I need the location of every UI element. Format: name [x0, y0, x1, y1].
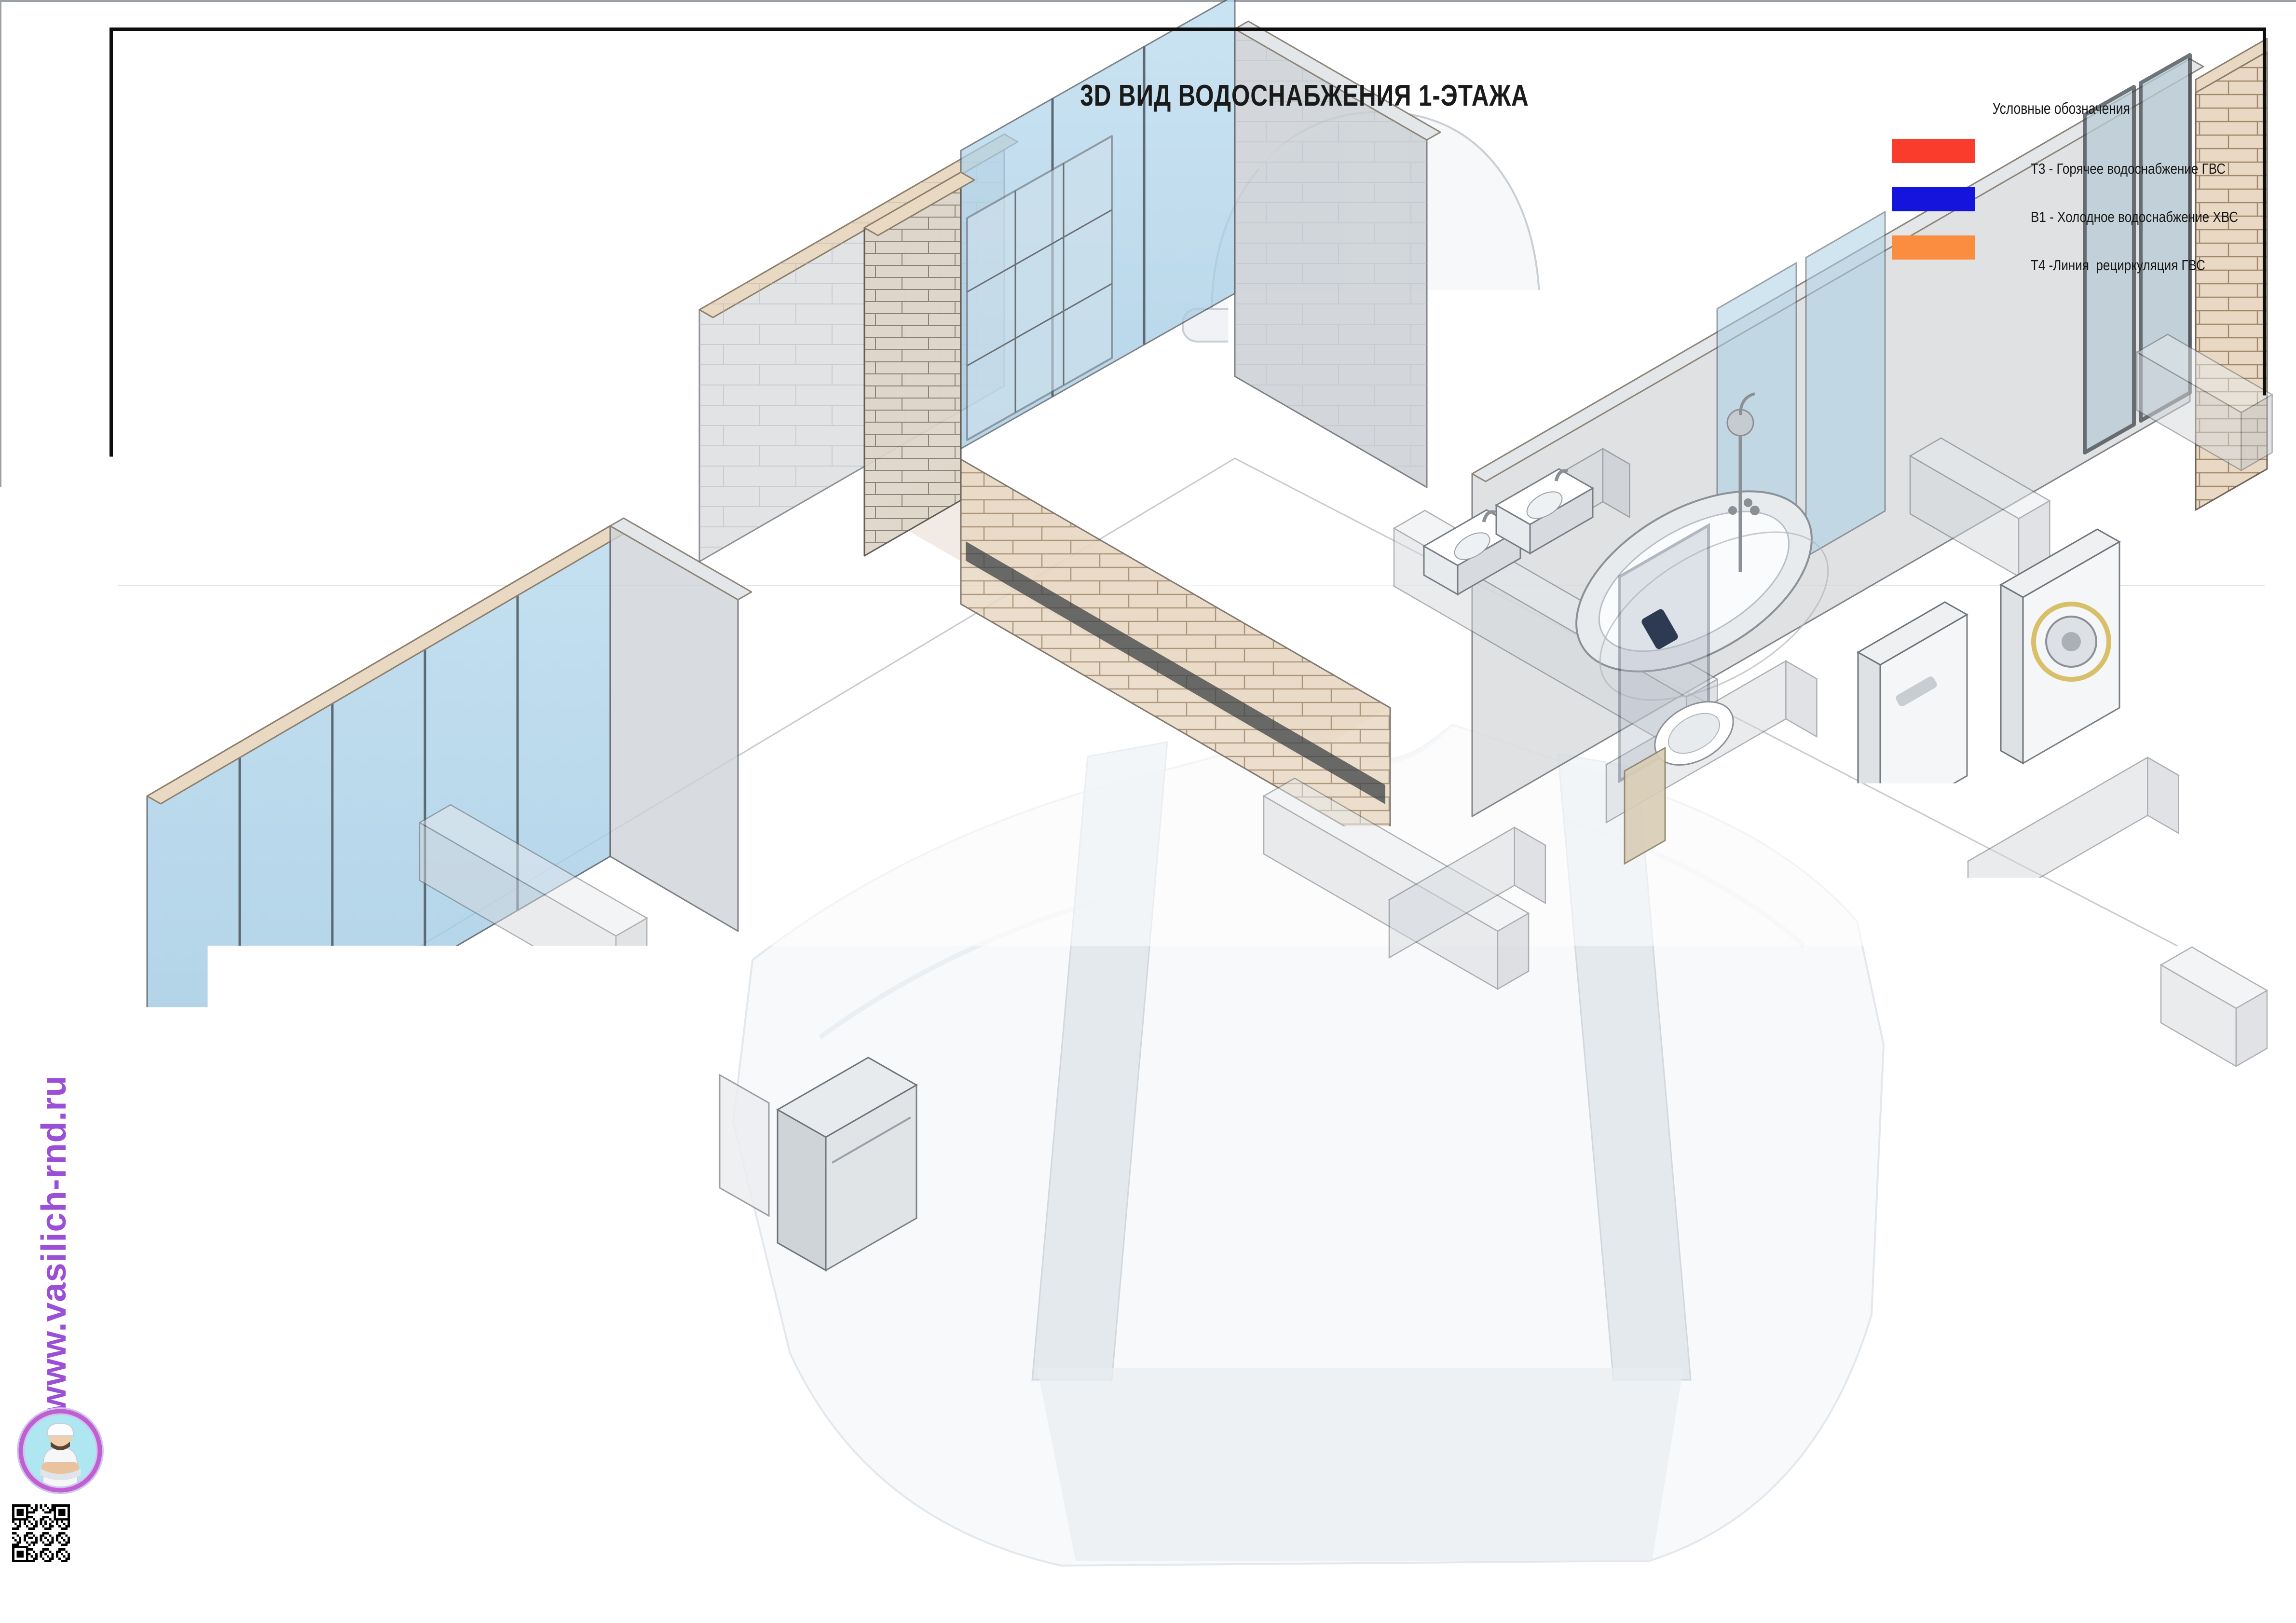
qr-module [68, 1507, 70, 1509]
qr-module [52, 1521, 54, 1523]
qr-module [42, 1516, 44, 1518]
qr-module [14, 1544, 17, 1546]
qr-module [68, 1557, 70, 1560]
qr-module [44, 1511, 47, 1513]
qr-module [44, 1548, 47, 1551]
qr-module [56, 1553, 58, 1555]
qr-module [30, 1555, 33, 1558]
qr-module [33, 1525, 35, 1527]
qr-module [12, 1527, 14, 1530]
legend-item-hot: Т3 - Горячее водоснабжение ГВС [2006, 143, 2263, 195]
qr-module [68, 1525, 70, 1527]
qr-module [56, 1518, 58, 1521]
qr-module [12, 1507, 14, 1509]
qr-module [68, 1553, 70, 1555]
qr-module [12, 1555, 14, 1558]
qr-module [61, 1509, 63, 1512]
qr-module [21, 1504, 24, 1507]
qr-module [12, 1509, 14, 1512]
qr-module [54, 1513, 56, 1516]
qr-module [19, 1546, 21, 1548]
qr-module [24, 1534, 26, 1537]
qr-module [47, 1548, 49, 1551]
legend-item-recirc: Т4 -Линия рециркуляция ГВС [2006, 239, 2239, 291]
qr-module [12, 1548, 14, 1551]
qr-module [63, 1518, 66, 1521]
qr-module [61, 1511, 63, 1513]
qr-module [61, 1532, 63, 1535]
qr-module [49, 1509, 52, 1512]
qr-module [28, 1532, 31, 1535]
qr-module [26, 1509, 28, 1512]
qr-module [40, 1518, 42, 1521]
qr-module [44, 1537, 47, 1539]
qr-module [54, 1511, 56, 1513]
legend-swatch-hot [1892, 139, 1975, 163]
qr-module [65, 1541, 68, 1544]
qr-module [49, 1541, 52, 1544]
qr-module [68, 1504, 70, 1507]
qr-module [28, 1504, 31, 1507]
qr-module [56, 1523, 58, 1525]
qr-module [47, 1511, 49, 1513]
qr-module [44, 1527, 47, 1530]
qr-module [17, 1525, 19, 1527]
qr-module [63, 1539, 66, 1541]
qr-module [68, 1537, 70, 1539]
qr-module [52, 1504, 54, 1507]
qr-module [63, 1527, 66, 1530]
qr-module [63, 1523, 66, 1525]
qr-module [12, 1518, 14, 1521]
qr-module [63, 1560, 66, 1562]
qr-module [35, 1525, 38, 1527]
qr-module [58, 1513, 61, 1516]
legend-swatch-recirc [1892, 235, 1975, 260]
qr-module [40, 1521, 42, 1523]
qr-module [44, 1523, 47, 1525]
qr-module [52, 1537, 54, 1539]
qr-module [54, 1518, 56, 1521]
qr-module [42, 1541, 44, 1544]
qr-module [26, 1511, 28, 1513]
qr-module [26, 1553, 28, 1555]
qr-module [17, 1546, 19, 1548]
tb-label-izm: Изм. [1258, 1569, 1297, 1593]
qr-module [14, 1532, 17, 1535]
qr-module [47, 1527, 49, 1530]
qr-module [30, 1548, 33, 1551]
qr-module [21, 1546, 24, 1548]
qr-module [17, 1551, 19, 1553]
qr-module [17, 1534, 19, 1537]
qr-module [33, 1509, 35, 1512]
qr-module [47, 1560, 49, 1562]
qr-module [19, 1525, 21, 1527]
qr-module [58, 1511, 61, 1513]
qr-module [21, 1518, 24, 1521]
qr-module [26, 1504, 28, 1507]
qr-module [61, 1518, 63, 1521]
qr-module [56, 1551, 58, 1553]
qr-module [28, 1516, 31, 1518]
qr-module [63, 1555, 66, 1558]
qr-module [56, 1534, 58, 1537]
qr-module [17, 1544, 19, 1546]
qr-module [54, 1507, 56, 1509]
qr-module [35, 1557, 38, 1560]
qr-module [12, 1546, 14, 1548]
qr-module [17, 1511, 19, 1513]
qr-module [12, 1560, 14, 1562]
qr-module [49, 1523, 52, 1525]
qr-module [61, 1521, 63, 1523]
qr-module [68, 1511, 70, 1513]
qr-module [63, 1513, 66, 1516]
qr-module [12, 1544, 14, 1546]
qr-module [19, 1521, 21, 1523]
qr-module [56, 1539, 58, 1541]
qr-module [19, 1523, 21, 1525]
qr-module [35, 1521, 38, 1523]
qr-module [52, 1555, 54, 1558]
qr-module [19, 1509, 21, 1512]
qr-module [26, 1516, 28, 1518]
qr-module [56, 1537, 58, 1539]
qr-module [33, 1557, 35, 1560]
qr-module [21, 1551, 24, 1553]
qr-module [14, 1527, 17, 1530]
qr-module [35, 1507, 38, 1509]
qr-module [33, 1518, 35, 1521]
qr-module [49, 1511, 52, 1513]
qr-module [17, 1509, 19, 1512]
qr-module [58, 1518, 61, 1521]
qr-module [19, 1511, 21, 1513]
qr-module [40, 1551, 42, 1553]
tb-sheet-number: 4.3 [2214, 1554, 2268, 1593]
qr-module [65, 1544, 68, 1546]
qr-module [21, 1560, 24, 1562]
qr-module [26, 1541, 28, 1544]
qr-module [44, 1516, 47, 1518]
tb-label-list: Лист [1296, 1569, 1352, 1593]
qr-module [47, 1532, 49, 1535]
qr-module [33, 1534, 35, 1537]
qr-module [63, 1544, 66, 1546]
qr-module [42, 1548, 44, 1551]
qr-module [52, 1539, 54, 1541]
qr-module [26, 1507, 28, 1509]
qr-module [40, 1537, 42, 1539]
legend-header: Условные обозначения [1949, 81, 2147, 136]
qr-module [21, 1553, 24, 1555]
qr-module [65, 1504, 68, 1507]
qr-module [19, 1537, 21, 1539]
qr-module [17, 1553, 19, 1555]
qr-module [42, 1518, 44, 1521]
qr-module [65, 1551, 68, 1553]
qr-module [54, 1516, 56, 1518]
qr-module [35, 1509, 38, 1512]
qr-module [19, 1553, 21, 1555]
qr-module [19, 1541, 21, 1544]
qr-module [47, 1555, 49, 1558]
qr-module [30, 1507, 33, 1509]
qr-module [35, 1537, 38, 1539]
qr-module [40, 1534, 42, 1537]
qr-module [52, 1553, 54, 1555]
qr-module [68, 1516, 70, 1518]
qr-module [47, 1507, 49, 1509]
page-title-text: 3D ВИД ВОДОСНАБЖЕНИЯ 1-ЭТАЖА [1080, 79, 1529, 113]
qr-module [26, 1557, 28, 1560]
qr-module [30, 1511, 33, 1513]
qr-module [12, 1521, 14, 1523]
qr-module [42, 1534, 44, 1537]
qr-module [30, 1527, 33, 1530]
qr-module [24, 1518, 26, 1521]
qr-module [65, 1557, 68, 1560]
qr-module [40, 1523, 42, 1525]
qr-module [42, 1509, 44, 1512]
qr-module [17, 1513, 19, 1516]
qr-module [28, 1560, 31, 1562]
qr-module [19, 1513, 21, 1516]
qr-module [42, 1525, 44, 1527]
qr-module [33, 1527, 35, 1530]
qr-module [52, 1557, 54, 1560]
qr-module [58, 1557, 61, 1560]
qr-module [24, 1504, 26, 1507]
qr-module [33, 1511, 35, 1513]
page-title: 3D ВИД ВОДОСНАБЖЕНИЯ 1-ЭТАЖА [989, 44, 1394, 147]
qr-module [21, 1511, 24, 1513]
qr-module [28, 1537, 31, 1539]
qr-module [58, 1534, 61, 1537]
qr-module [68, 1518, 70, 1521]
qr-module [17, 1541, 19, 1544]
qr-module [26, 1546, 28, 1548]
qr-module [61, 1513, 63, 1516]
qr-module [17, 1527, 19, 1530]
qr-module [68, 1523, 70, 1525]
qr-module [68, 1521, 70, 1523]
qr-module [56, 1555, 58, 1558]
qr-module [61, 1544, 63, 1546]
qr-module [47, 1539, 49, 1541]
qr-module [49, 1544, 52, 1546]
qr-module [42, 1557, 44, 1560]
qr-module [28, 1544, 31, 1546]
qr-module [14, 1518, 17, 1521]
qr-module [40, 1555, 42, 1558]
qr-module [28, 1521, 31, 1523]
qr-module [49, 1534, 52, 1537]
qr-module [49, 1525, 52, 1527]
qr-module [21, 1513, 24, 1516]
qr-module [30, 1523, 33, 1525]
qr-module [12, 1504, 14, 1507]
qr-module [12, 1513, 14, 1516]
qr-module [47, 1544, 49, 1546]
qr-module [65, 1518, 68, 1521]
qr-module [52, 1509, 54, 1512]
qr-module [28, 1548, 31, 1551]
qr-module [12, 1551, 14, 1553]
qr-module [49, 1551, 52, 1553]
qr-module [30, 1541, 33, 1544]
qr-module [12, 1537, 14, 1539]
qr-module [49, 1518, 52, 1521]
qr-module [44, 1504, 47, 1507]
qr-module [58, 1541, 61, 1544]
qr-module [19, 1551, 21, 1553]
qr-module [68, 1513, 70, 1516]
qr-module [19, 1560, 21, 1562]
qr-module [42, 1551, 44, 1553]
qr-module [28, 1527, 31, 1530]
legend-item-cold: В1 - Холодное водоснабжение ХВС [2006, 191, 2278, 243]
tb-label-doc: № док. [1352, 1569, 1476, 1593]
qr-module [65, 1525, 68, 1527]
qr-module [26, 1513, 28, 1516]
qr-module [35, 1539, 38, 1541]
qr-module [52, 1541, 54, 1544]
qr-module [30, 1532, 33, 1535]
qr-module [54, 1509, 56, 1512]
qr-module [54, 1504, 56, 1507]
qr-module [61, 1560, 63, 1562]
qr-module [58, 1509, 61, 1512]
qr-module [17, 1504, 19, 1507]
qr-module [14, 1523, 17, 1525]
qr-module [24, 1523, 26, 1525]
tb-sheet-word: Лист [2214, 1516, 2268, 1550]
qr-module [26, 1525, 28, 1527]
qr-module [19, 1539, 21, 1541]
qr-module [28, 1553, 31, 1555]
qr-module [65, 1534, 68, 1537]
qr-module [58, 1551, 61, 1553]
qr-module [35, 1553, 38, 1555]
qr-module [52, 1525, 54, 1527]
qr-module [58, 1525, 61, 1527]
qr-module [44, 1532, 47, 1535]
qr-module [56, 1504, 58, 1507]
qr-module [63, 1548, 66, 1551]
sheet-frame [109, 28, 2266, 1593]
qr-module [35, 1504, 38, 1507]
qr-module [61, 1548, 63, 1551]
qr-code [12, 1504, 70, 1562]
qr-module [14, 1539, 17, 1541]
qr-module [12, 1516, 14, 1518]
qr-module [63, 1509, 66, 1512]
qr-module [35, 1541, 38, 1544]
legend-swatch-cold [1892, 187, 1975, 211]
qr-module [14, 1546, 17, 1548]
qr-module [19, 1518, 21, 1521]
drawing-sheet: 3D ВИД ВОДОСНАБЖЕНИЯ 1-ЭТАЖА Условные об… [0, 0, 2296, 1623]
qr-module [61, 1553, 63, 1555]
qr-module [19, 1555, 21, 1558]
qr-module [56, 1521, 58, 1523]
qr-module [42, 1532, 44, 1535]
qr-module [68, 1509, 70, 1512]
qr-module [30, 1560, 33, 1562]
qr-module [12, 1511, 14, 1513]
qr-module [24, 1560, 26, 1562]
qr-module [24, 1521, 26, 1523]
qr-module [26, 1548, 28, 1551]
qr-module [12, 1532, 14, 1535]
qr-module [47, 1516, 49, 1518]
qr-module [33, 1544, 35, 1546]
qr-module [26, 1555, 28, 1558]
qr-module [58, 1548, 61, 1551]
qr-module [35, 1555, 38, 1558]
qr-module [17, 1518, 19, 1521]
qr-module [40, 1553, 42, 1555]
qr-module [12, 1553, 14, 1555]
qr-module [26, 1532, 28, 1535]
qr-module [44, 1560, 47, 1562]
qr-module [33, 1541, 35, 1544]
qr-module [49, 1560, 52, 1562]
qr-module [68, 1541, 70, 1544]
qr-module [21, 1555, 24, 1558]
qr-module [14, 1504, 17, 1507]
qr-module [63, 1511, 66, 1513]
tb-copied-label: Копировал [1693, 1599, 1920, 1619]
qr-module [30, 1516, 33, 1518]
brand-avatar [14, 1405, 106, 1497]
qr-module [35, 1523, 38, 1525]
qr-module [49, 1527, 52, 1530]
qr-module [21, 1509, 24, 1512]
qr-module [24, 1546, 26, 1548]
qr-module [44, 1553, 47, 1555]
qr-module [68, 1555, 70, 1558]
qr-module [19, 1504, 21, 1507]
qr-module [17, 1560, 19, 1562]
qr-module [61, 1537, 63, 1539]
qr-module [26, 1560, 28, 1562]
qr-module [24, 1539, 26, 1541]
qr-module [58, 1504, 61, 1507]
qr-module [58, 1532, 61, 1535]
qr-module [28, 1511, 31, 1513]
qr-module [40, 1539, 42, 1541]
signature [1466, 1467, 1572, 1578]
qr-module [33, 1551, 35, 1553]
qr-module [26, 1551, 28, 1553]
qr-module [26, 1518, 28, 1521]
qr-module [63, 1532, 66, 1535]
qr-module [65, 1527, 68, 1530]
qr-module [12, 1557, 14, 1560]
qr-module [24, 1537, 26, 1539]
qr-module [61, 1527, 63, 1530]
qr-module [52, 1507, 54, 1509]
qr-module [44, 1521, 47, 1523]
qr-module [33, 1560, 35, 1562]
qr-module [14, 1560, 17, 1562]
qr-module [44, 1544, 47, 1546]
qr-module [61, 1504, 63, 1507]
qr-module [40, 1504, 42, 1507]
